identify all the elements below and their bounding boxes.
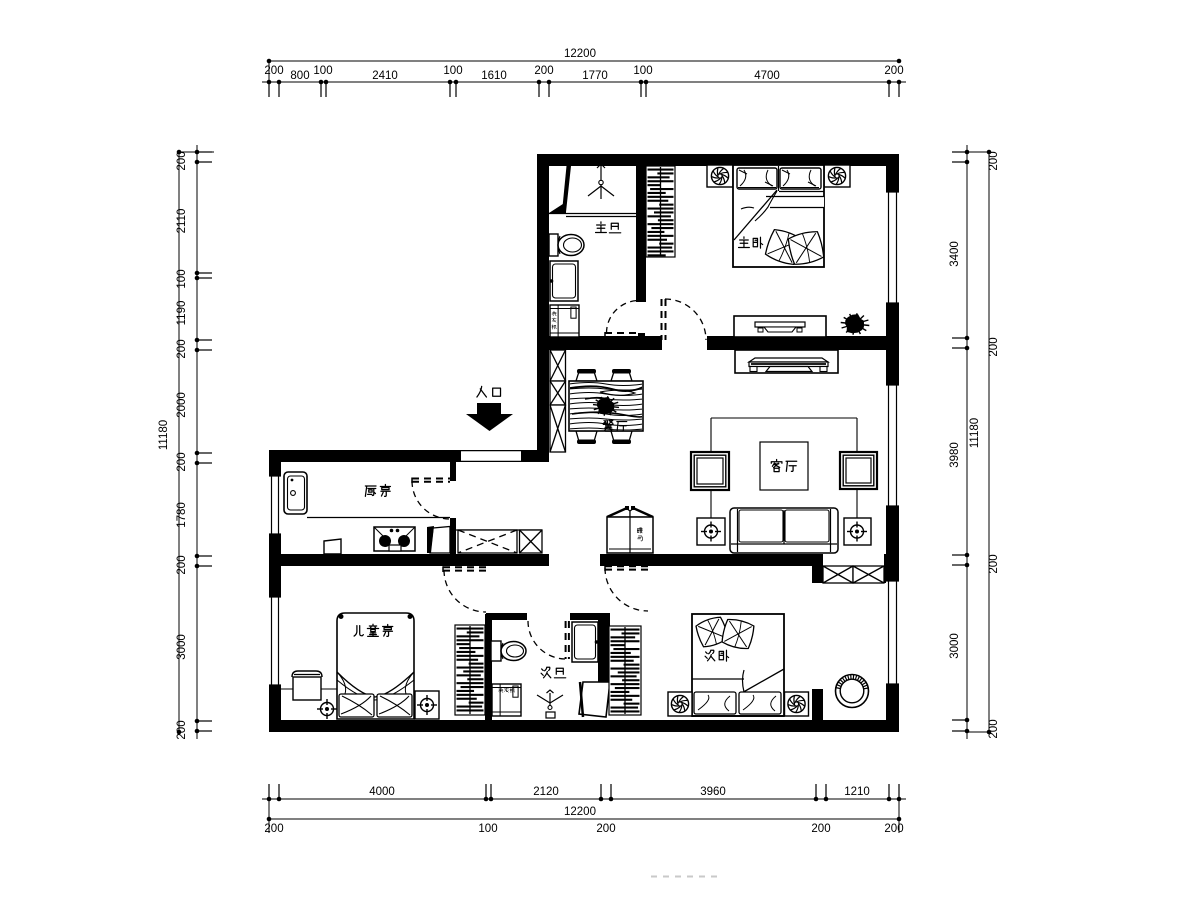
svg-text:11180: 11180 <box>158 420 170 450</box>
svg-text:200: 200 <box>988 151 1000 170</box>
svg-text:200: 200 <box>596 823 615 835</box>
svg-text:1770: 1770 <box>582 70 608 82</box>
svg-text:200: 200 <box>176 452 188 471</box>
svg-text:200: 200 <box>988 337 1000 356</box>
svg-text:1780: 1780 <box>176 502 188 528</box>
svg-text:200: 200 <box>264 65 283 77</box>
svg-text:3000: 3000 <box>949 633 961 659</box>
svg-text:4000: 4000 <box>369 786 395 798</box>
svg-text:1190: 1190 <box>176 301 188 326</box>
svg-text:11180: 11180 <box>969 418 981 448</box>
svg-text:200: 200 <box>176 555 188 574</box>
svg-text:200: 200 <box>176 720 188 739</box>
svg-text:100: 100 <box>478 823 497 835</box>
svg-text:200: 200 <box>884 823 903 835</box>
svg-text:3000: 3000 <box>176 634 188 660</box>
svg-text:100: 100 <box>443 65 462 77</box>
svg-text:1610: 1610 <box>481 70 507 82</box>
svg-text:200: 200 <box>176 151 188 170</box>
svg-text:200: 200 <box>884 65 903 77</box>
svg-text:800: 800 <box>290 70 309 82</box>
svg-text:3980: 3980 <box>949 442 961 468</box>
svg-text:12200: 12200 <box>564 806 596 818</box>
svg-text:2120: 2120 <box>533 786 559 798</box>
svg-text:2000: 2000 <box>176 392 188 418</box>
svg-text:200: 200 <box>811 823 830 835</box>
svg-text:200: 200 <box>988 554 1000 573</box>
svg-text:200: 200 <box>988 719 1000 738</box>
svg-text:3960: 3960 <box>700 786 726 798</box>
svg-text:200: 200 <box>534 65 553 77</box>
svg-text:200: 200 <box>264 823 283 835</box>
svg-text:2410: 2410 <box>372 70 398 82</box>
svg-text:200: 200 <box>176 339 188 358</box>
svg-text:12200: 12200 <box>564 48 596 60</box>
svg-text:1210: 1210 <box>844 786 870 798</box>
svg-text:4700: 4700 <box>754 70 780 82</box>
svg-text:2110: 2110 <box>176 209 188 234</box>
svg-text:100: 100 <box>176 269 188 288</box>
svg-text:100: 100 <box>313 65 332 77</box>
svg-text:3400: 3400 <box>949 241 961 267</box>
svg-text:100: 100 <box>633 65 652 77</box>
